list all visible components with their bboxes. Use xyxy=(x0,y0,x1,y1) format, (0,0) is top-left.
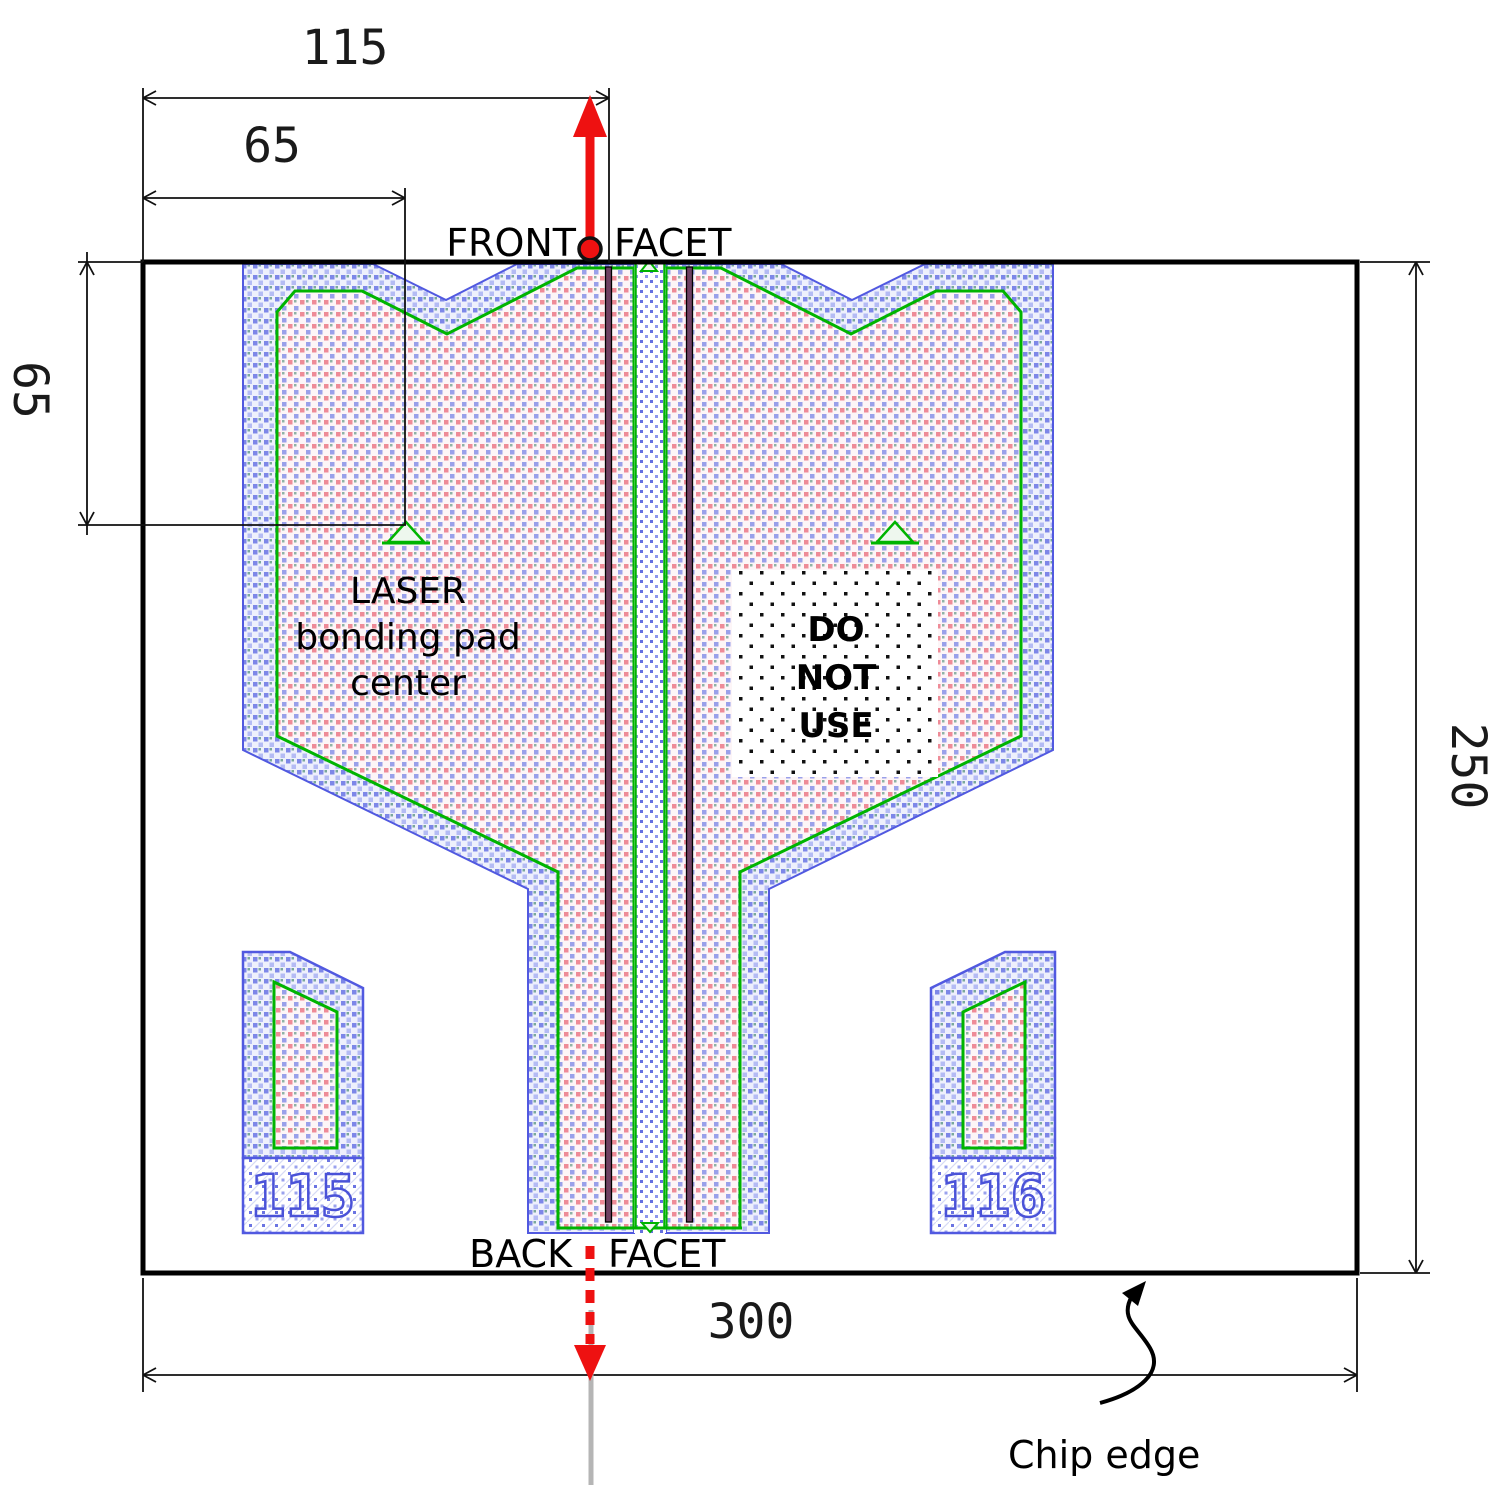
laser-pad-label-line1: LASER xyxy=(350,571,466,612)
front-facet-arrow-shaft xyxy=(586,128,595,240)
do-not-use-box: DO NOT USE xyxy=(732,570,938,777)
dim-300-value: 300 xyxy=(708,1294,795,1350)
drawing-canvas: 115 116 DO NOT USE xyxy=(0,0,1498,1485)
chip-edge-label: Chip edge xyxy=(1008,1433,1200,1477)
front-facet-label-word1: FRONT xyxy=(446,221,577,265)
do-not-use-label-line2: NOT xyxy=(796,658,877,698)
laser-chip-layout-drawing: 115 116 DO NOT USE xyxy=(0,0,1498,1485)
pad-number-right: 116 xyxy=(941,1162,1046,1230)
ridge-line-right xyxy=(687,267,693,1222)
back-facet-marker xyxy=(574,1246,606,1381)
dim-65h-value: 65 xyxy=(243,118,301,174)
laser-pad-label-line3: center xyxy=(350,663,466,704)
dim-115-value: 115 xyxy=(302,20,389,76)
test-pad-115: 115 xyxy=(243,952,363,1233)
waveguide-hatch xyxy=(634,262,666,1233)
back-facet-label-word2: FACET xyxy=(608,1232,726,1276)
test-pad-116-metal xyxy=(963,982,1025,1148)
dim-65v-value: 65 xyxy=(2,361,58,419)
do-not-use-label-line3: USE xyxy=(798,706,873,746)
do-not-use-label-line1: DO xyxy=(807,610,864,650)
chip-edge-arrow xyxy=(1100,1281,1154,1403)
chip-edge-arrowhead xyxy=(1122,1281,1146,1306)
test-pad-115-metal xyxy=(274,982,337,1148)
laser-pad-label-line2: bonding pad xyxy=(295,617,520,658)
test-pad-116: 116 xyxy=(931,952,1055,1233)
front-facet-label-word2: FACET xyxy=(614,221,732,265)
back-facet-label-word1: BACK xyxy=(469,1232,573,1276)
ridge-line-left xyxy=(606,267,612,1222)
dim-250-value: 250 xyxy=(1440,723,1496,810)
front-facet-marker xyxy=(573,95,607,260)
pad-number-left: 115 xyxy=(251,1162,356,1230)
front-facet-dot xyxy=(579,238,601,260)
chip-edge-arrow-curve xyxy=(1100,1296,1154,1403)
